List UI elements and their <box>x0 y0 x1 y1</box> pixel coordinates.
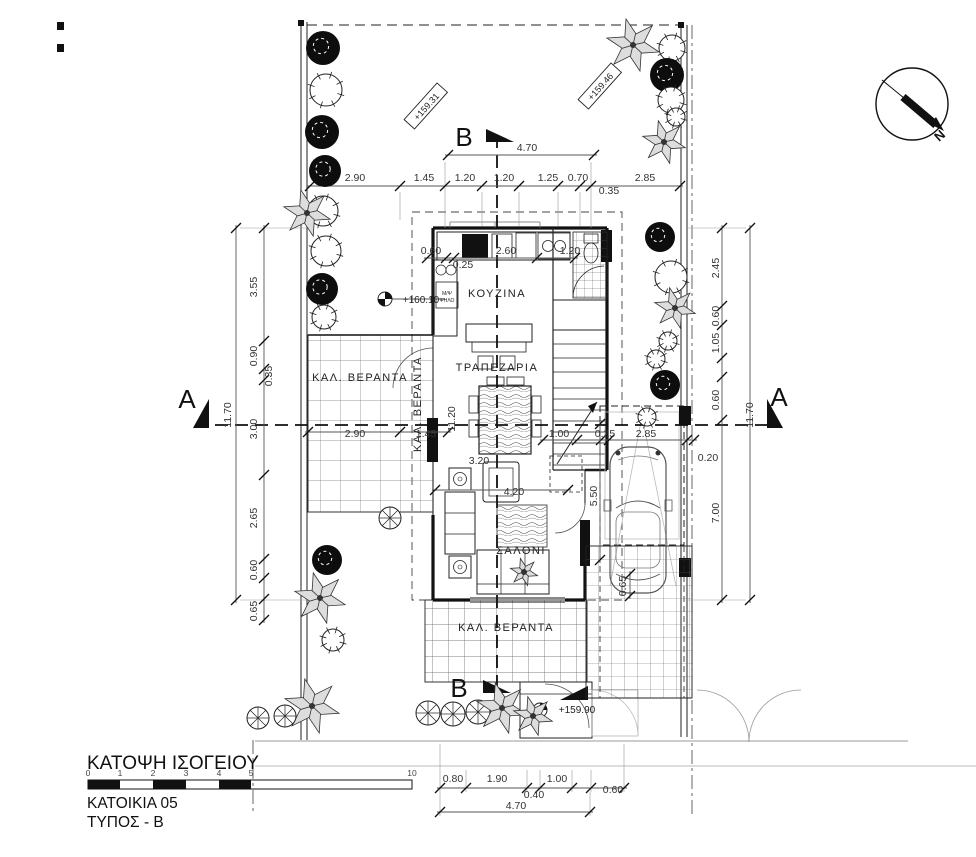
dining-table <box>469 377 541 454</box>
section-marker-label: B <box>455 122 472 152</box>
title-block: ΚΑΤΟΨΗ ΙΣΟΓΕΙΟΥ 01234510 ΚΑΤΟΙΚΙΑ 05 ΤΥΠ… <box>86 753 417 831</box>
section-marker-label: A <box>178 384 196 414</box>
elevation-tag: +159.31 <box>404 83 447 129</box>
dimension-label: 1.25 <box>538 172 559 184</box>
dimension-label: 3.00 <box>248 419 260 440</box>
plan-title: ΚΑΤΟΨΗ ΙΣΟΓΕΙΟΥ <box>87 753 259 774</box>
section-marker-label: A <box>770 382 788 412</box>
dimension-label: 2.90 <box>345 172 366 184</box>
room-label: ΤΡΑΠΕΖΑΡΙΑ <box>456 362 539 374</box>
tree-dark-icon <box>312 545 342 575</box>
section-marker-label: B <box>450 673 467 703</box>
dimension-label: 11.20 <box>446 406 458 432</box>
veranda-bottom <box>425 600 587 682</box>
floor-plan-page: 2.901.451.201.201.250.700.352.854.700.60… <box>0 0 976 857</box>
palm-icon <box>513 696 554 737</box>
dimension-label: 3.55 <box>248 277 260 298</box>
tree-icon <box>645 348 668 371</box>
dimension-label: 1.20 <box>560 245 581 257</box>
fixture-note: Μ/Ψ <box>442 291 452 297</box>
oven-icon <box>462 234 488 258</box>
shrub-icon <box>274 705 296 727</box>
palm-icon <box>605 17 660 72</box>
north-label: N <box>931 127 948 144</box>
dimension-chain <box>717 223 727 605</box>
rug <box>497 505 547 547</box>
dimension-label: 1.00 <box>549 428 570 440</box>
dimension-label: 2.65 <box>248 508 260 529</box>
dimension-label: 0.20 <box>698 452 719 464</box>
stair-direction-arrow <box>588 402 597 413</box>
dimension-label: 4.20 <box>504 486 525 498</box>
tree-dark-icon <box>305 115 339 149</box>
scale-bar <box>88 780 412 789</box>
dimension-label: 4.70 <box>517 142 538 154</box>
dimension-label: 0.60 <box>248 560 260 581</box>
frame-marks <box>57 22 64 52</box>
tree-icon <box>657 330 680 353</box>
tree-icon <box>308 72 344 108</box>
tree-dark-icon <box>309 155 341 187</box>
dimension-label: 0.25 <box>453 259 474 271</box>
scale-tick-label: 1 <box>118 768 123 778</box>
dimension-label: 1.45 <box>414 172 435 184</box>
sofa-set <box>445 456 582 594</box>
north-arrow: N <box>876 68 948 144</box>
dimension-label: 1.05 <box>710 333 722 354</box>
dimension-chain <box>430 485 573 495</box>
scale-tick-label: 5 <box>249 768 254 778</box>
shrub-icon <box>416 701 440 725</box>
elevation-label: +160.10 <box>403 295 440 306</box>
sofa <box>445 492 475 554</box>
scale-tick-label: 4 <box>217 768 222 778</box>
dimension-label: 1.90 <box>487 773 508 785</box>
dimension-label: 0.60 <box>710 306 722 327</box>
room-label: ΚΑΛ. ΒΕΡΑΝΤΑ <box>458 622 554 634</box>
shrub-icon <box>247 707 269 729</box>
dimension-label: 11.70 <box>744 402 756 428</box>
dimension-label: 0.25 <box>595 428 616 440</box>
dimension-label: 0.40 <box>524 789 545 801</box>
scale-tick-label: 10 <box>407 768 417 778</box>
side-table <box>449 556 471 578</box>
side-table <box>449 468 471 490</box>
room-label: ΣΑΛΟΝΙ <box>496 545 546 557</box>
shrub-icon <box>379 507 401 529</box>
dimension-label: 1.20 <box>494 172 515 184</box>
dimension-label: 0.60 <box>421 245 442 257</box>
section-flag-b-top <box>486 129 514 142</box>
fixture-note: ΨΗΛΟ <box>440 298 455 304</box>
elevation-tag: +159.46 <box>578 63 621 109</box>
dimension-label: 0.80 <box>443 773 464 785</box>
palm-icon <box>283 677 340 734</box>
tree-dark-icon <box>306 31 340 65</box>
dimension-chain <box>259 223 269 625</box>
dimension-label: 0.90 <box>248 346 260 367</box>
road-lines <box>255 741 976 766</box>
tree-icon <box>320 627 347 654</box>
dimension-label: 3.20 <box>469 455 490 467</box>
sink-icon <box>543 241 554 252</box>
dimension-label: 1.20 <box>455 172 476 184</box>
elevation-label: +159.90 <box>559 705 596 716</box>
room-label: ΚΑΛ. ΒΕΡΑΝΤΑ <box>312 372 408 384</box>
palm-icon <box>510 558 539 587</box>
dimension-label: 0.60 <box>710 390 722 411</box>
dimension-label: 2.85 <box>635 172 656 184</box>
room-label: ΚΑΛ. ΒΕΡΑΝΤΑ <box>412 356 424 452</box>
dimension-label: 2.60 <box>496 245 517 257</box>
dimension-label: 0.60 <box>603 784 624 796</box>
palm-icon <box>641 119 686 164</box>
tree-dark-icon <box>650 58 684 92</box>
dimension-label: 7.00 <box>710 503 722 524</box>
tree-dark-icon <box>650 370 680 400</box>
dimension-label: 0.65 <box>248 601 260 622</box>
dimension-label: 1.00 <box>547 773 568 785</box>
shrub-icon <box>441 702 465 726</box>
house-label: ΚΑΤΟΙΚΙΑ 05 <box>87 795 178 812</box>
dimension-label: 0.65 <box>617 576 629 597</box>
tree-icon <box>310 303 339 332</box>
dimension-label: 11.70 <box>222 402 234 428</box>
dimension-label: 0.35 <box>263 366 275 387</box>
scale-tick-label: 3 <box>184 768 189 778</box>
scale-tick-label: 2 <box>151 768 156 778</box>
kitchen-island <box>466 324 532 342</box>
type-label: ΤΥΠΟΣ - Β <box>87 814 164 831</box>
dimension-label: 5.50 <box>588 486 600 507</box>
tree-dark-icon <box>306 273 338 305</box>
carport <box>586 406 801 742</box>
tree-dark-icon <box>645 222 675 252</box>
dimension-label: 2.85 <box>636 428 657 440</box>
dimension-label: 0.35 <box>599 185 620 197</box>
tree-icon <box>309 234 343 268</box>
tree-icon <box>657 33 688 64</box>
stair-treads <box>553 344 607 465</box>
dimension-label: 0.70 <box>568 172 589 184</box>
dimension-label: 2.90 <box>345 428 366 440</box>
dimension-label: 4.70 <box>506 800 527 812</box>
scale-tick-label: 0 <box>86 768 91 778</box>
floor-plan-canvas: 2.901.451.201.201.250.700.352.854.700.60… <box>0 0 976 857</box>
dimension-label: 2.45 <box>710 258 722 279</box>
room-label: ΚΟΥΖΙΝΑ <box>468 288 526 300</box>
